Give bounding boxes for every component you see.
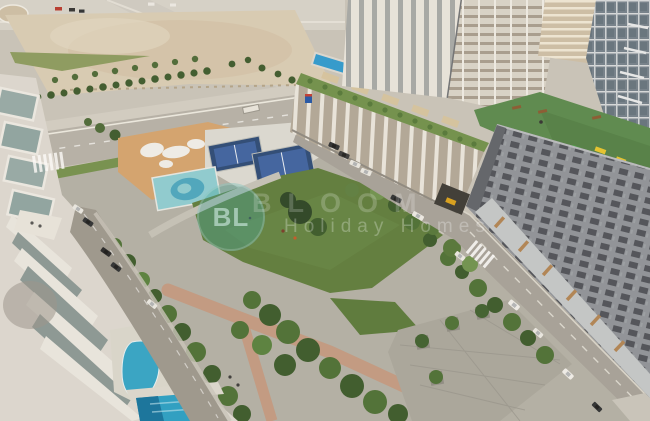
tone-overlay [0, 0, 650, 421]
photo-canvas [0, 0, 650, 421]
aerial-photo: BL BLOOM Holiday Homes [0, 0, 650, 421]
